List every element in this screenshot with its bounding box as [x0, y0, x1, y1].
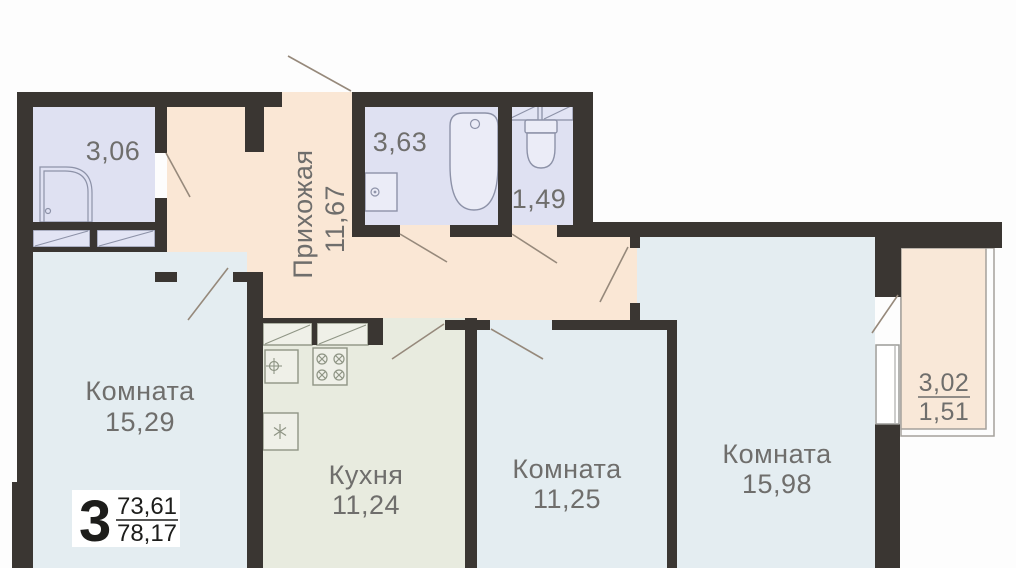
bathtub-outline: [450, 113, 498, 210]
badge-total-area: 78,17: [117, 520, 177, 547]
wall-segment: [352, 107, 365, 225]
hallway-sliver: [247, 230, 263, 272]
apartment-badge: 3 73,61 78,17: [72, 489, 180, 554]
wall-segment: [465, 318, 477, 568]
hallway-label: Прихожая: [288, 149, 318, 278]
kitchen-area: 11,24: [332, 490, 400, 520]
toilet-tank: [525, 120, 557, 133]
wall-segment: [875, 222, 1002, 248]
stove: [313, 348, 347, 385]
hallway-area: 11,67: [320, 185, 350, 253]
door-swing-entrance: [288, 56, 351, 91]
wall-segment: [498, 107, 512, 225]
bathtub: [450, 113, 498, 210]
bathroom-sink: [365, 173, 397, 211]
living-left-label: Комната: [85, 376, 195, 406]
wall-segment: [12, 482, 33, 568]
hallway-entrance-gap: [282, 92, 352, 107]
wall-segment: [573, 92, 593, 237]
wall-segment: [630, 303, 640, 320]
wall-segment: [352, 225, 400, 237]
toilet-bowl: [527, 133, 555, 168]
hallway-nook: [167, 230, 247, 252]
wall-segment: [17, 247, 167, 252]
badge-rooms-count: 3: [79, 489, 111, 554]
floor-plan-screenshot: 3,06 3,63 1,49 Прихожая 11,67 Комната 15…: [0, 0, 1016, 568]
wall-segment: [552, 320, 677, 330]
toilet: [525, 120, 557, 168]
door-swing-balcony: [872, 295, 898, 333]
badge-living-area: 73,61: [117, 493, 177, 520]
living-middle-label: Комната: [512, 454, 622, 484]
balcony-area-counted: 1,51: [919, 398, 970, 426]
wall-segment: [875, 424, 900, 568]
living-left-area: 15,29: [105, 407, 175, 437]
kitchen-label: Кухня: [329, 460, 404, 490]
wall-segment: [17, 222, 167, 230]
living-middle-floor: [477, 320, 667, 568]
balcony-area-total: 3,02: [919, 369, 970, 397]
living-right-label: Комната: [722, 439, 832, 469]
floor-plan: 3,06 3,63 1,49 Прихожая 11,67 Комната 15…: [0, 0, 1016, 568]
wall-segment: [17, 92, 33, 482]
wall-segment: [245, 107, 264, 152]
wall-segment: [247, 272, 263, 568]
wall-segment: [630, 237, 640, 248]
wall-segment: [17, 92, 282, 107]
window-frame: [876, 345, 899, 424]
wall-segment: [593, 222, 875, 237]
window-to-balcony: [876, 345, 899, 424]
living-right-area: 15,98: [742, 469, 812, 499]
wall-segment: [875, 248, 901, 297]
living-middle-area: 11,25: [533, 484, 601, 514]
sink-body: [365, 173, 397, 211]
shower-room-area: 3,06: [86, 136, 141, 166]
wall-segment: [667, 320, 677, 568]
wall-segment: [155, 107, 167, 153]
bathroom-area: 3,63: [373, 127, 428, 157]
wc-area: 1,49: [512, 184, 567, 214]
wall-segment: [352, 92, 593, 107]
wall-segment: [557, 225, 593, 237]
wall-segment: [450, 225, 512, 237]
wall-segment: [368, 318, 383, 345]
kitchen-sink-unit: [265, 350, 298, 383]
wall-segment: [155, 272, 177, 282]
wall-segment: [312, 321, 317, 345]
wall-segment: [90, 230, 97, 247]
fridge: [263, 413, 298, 450]
